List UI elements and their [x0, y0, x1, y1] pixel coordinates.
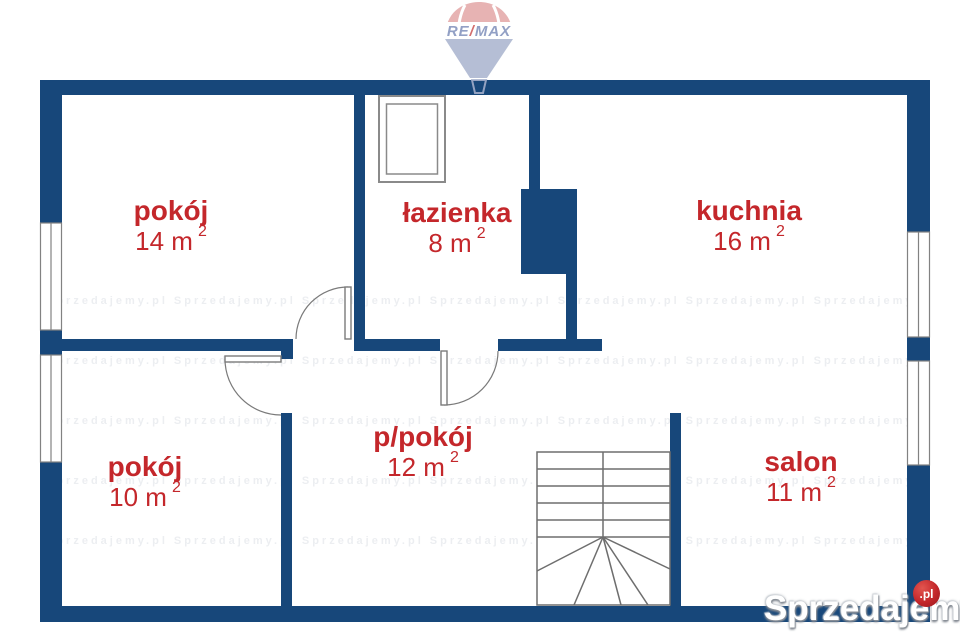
- balloon-basket: [472, 80, 486, 93]
- room-area: 16 m2: [696, 228, 802, 255]
- room-name: salon: [764, 447, 837, 476]
- outer-wall-right-pier: [907, 337, 930, 361]
- door-pokoj14-arc: [296, 287, 348, 339]
- staircase: [537, 452, 670, 605]
- room-name: p/pokój: [373, 422, 473, 451]
- chimney-block: [521, 189, 577, 274]
- outer-wall-left-lower: [40, 462, 62, 622]
- area-superscript: 2: [477, 225, 486, 242]
- door-hinge-post: [281, 351, 293, 359]
- door-lazienka-leaf: [441, 351, 447, 405]
- room-area: 11 m2: [764, 479, 837, 506]
- area-value: 10 m: [109, 482, 167, 512]
- floorplan-canvas: Sprzedajemy.pl Sprzedajemy.pl Sprzedajem…: [0, 0, 960, 640]
- wall-ppokoj-salon: [670, 413, 681, 606]
- room-area: 8 m2: [403, 230, 512, 257]
- room-label-p-pokoj: p/pokój 12 m2: [373, 422, 473, 481]
- area-value: 12 m: [387, 452, 445, 482]
- wall-pokoj14-lazienka: [354, 95, 365, 351]
- wall-lazienka-kuchnia-lower: [566, 274, 577, 340]
- room-label-salon: salon 11 m2: [764, 447, 837, 506]
- room-label-lazienka: łazienka 8 m2: [403, 198, 512, 257]
- sprzedajemy-watermark: Sprzedajemy .pl: [764, 589, 960, 629]
- remax-balloon-logo: RE/MAX: [423, 0, 535, 100]
- door-pokoj10-leaf: [225, 356, 281, 362]
- outer-wall-right-upper: [907, 80, 930, 232]
- door-lazienka-arc: [444, 351, 498, 405]
- area-superscript: 2: [198, 223, 207, 240]
- area-superscript: 2: [776, 223, 785, 240]
- wall-lazienka-kuchnia-upper: [529, 95, 540, 189]
- outer-wall-left-pier: [40, 330, 62, 355]
- room-name: kuchnia: [696, 196, 802, 225]
- room-area: 10 m2: [108, 484, 183, 511]
- room-area: 12 m2: [373, 454, 473, 481]
- area-value: 14 m: [135, 226, 193, 256]
- wall-kuchnia-bottom: [498, 339, 602, 351]
- area-value: 11 m: [766, 477, 822, 507]
- area-superscript: 2: [827, 474, 836, 491]
- area-value: 8 m: [428, 228, 471, 258]
- area-superscript: 2: [450, 449, 459, 466]
- balloon-cone: [445, 39, 513, 78]
- door-pokoj14-leaf: [345, 287, 351, 339]
- room-label-kuchnia: kuchnia 16 m2: [696, 196, 802, 255]
- wall-lazienka-bottom-left: [365, 339, 440, 351]
- room-label-pokoj-10: pokój 10 m2: [108, 452, 183, 511]
- watermark-pl-badge: .pl: [913, 580, 940, 607]
- room-name: pokój: [134, 196, 209, 225]
- room-area: 14 m2: [134, 228, 209, 255]
- balloon-band-text: RE/MAX: [447, 23, 511, 40]
- room-label-pokoj-14: pokój 14 m2: [134, 196, 209, 255]
- room-name: pokój: [108, 452, 183, 481]
- wall-pokoj14-bottom: [62, 339, 293, 351]
- room-name: łazienka: [403, 198, 512, 227]
- wall-pokoj10-ppokoj: [281, 413, 292, 606]
- bathroom-fixture: [379, 96, 445, 182]
- bathroom-fixture-outer: [379, 96, 445, 182]
- area-superscript: 2: [172, 479, 181, 496]
- door-pokoj10-arc: [225, 359, 281, 415]
- outer-wall-left-upper: [40, 80, 62, 223]
- area-value: 16 m: [713, 226, 771, 256]
